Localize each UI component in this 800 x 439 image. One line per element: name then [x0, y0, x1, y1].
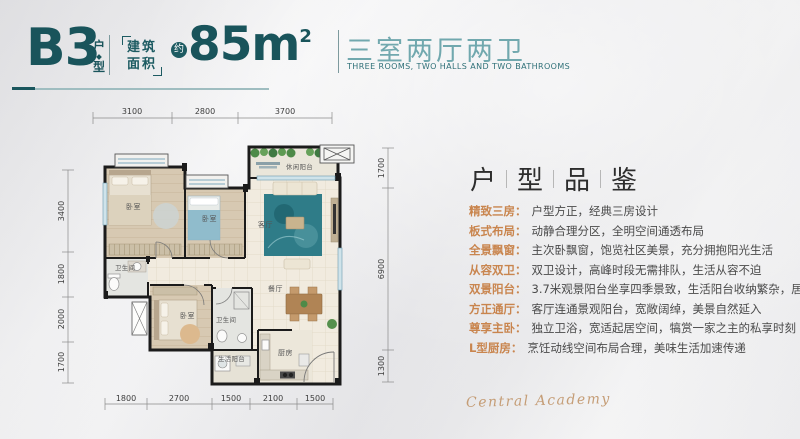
feature-desc: 动静合理分区，全明空间通透布局 [532, 222, 705, 242]
header-divider-1 [109, 35, 110, 75]
area-number: 85m [188, 17, 299, 72]
label-dining: 餐厅 [268, 284, 283, 293]
feature-desc: 主次卧飘窗，饱览社区美景，充分拥抱阳光生活 [532, 241, 774, 261]
feature-desc: 烹饪动线空间布局合理，美味生活加速传递 [527, 339, 746, 359]
feature-tag: 精致三房： [469, 202, 527, 222]
label-bath2: 卫生间 [216, 315, 236, 324]
feature-tag: 从容双卫： [469, 261, 527, 281]
feature-tag: 尊享主卧： [469, 319, 527, 339]
label-bath1: 卫生间 [115, 263, 135, 272]
dim-right-1: 1700 [377, 158, 386, 178]
heading-char-1: 户 [470, 160, 496, 197]
feature-row: 尊享主卧： 独立卫浴，宽适起居空间，犒赏一家之主的私享时刻 [469, 319, 800, 339]
label-leisure-balcony: 休闲阳台 [286, 162, 313, 171]
feature-row: 板式布局： 动静合理分区，全明空间通透布局 [469, 222, 800, 242]
area-superscript: 2 [299, 26, 312, 47]
feature-row: 从容双卫： 双卫设计，高峰时段无需排队，生活从容不迫 [469, 261, 800, 281]
dim-left-3: 2000 [57, 309, 66, 329]
dim-left-1: 3400 [57, 201, 66, 221]
diamond-icon [96, 54, 102, 60]
dim-right-3: 1300 [377, 356, 386, 376]
feature-tag: 板式布局： [469, 222, 527, 242]
approx-badge: 约 [171, 42, 187, 58]
feature-tag: L型厨房： [469, 339, 522, 359]
unit-type-char-top: 户 [93, 39, 105, 53]
poster-canvas: { "header": { "unit_code": "B3", "unit_l… [0, 0, 800, 439]
area-label-line2: 面积 [127, 56, 157, 73]
panel-heading: 户 型 品 鉴 [470, 160, 637, 197]
label-bedroom1: 卧室 [126, 202, 141, 211]
heading-separator [600, 170, 601, 188]
header-rule-dark [12, 87, 35, 90]
dim-bottom-4: 2100 [263, 394, 283, 403]
dim-bottom-1: 1800 [116, 394, 136, 403]
feature-desc: 独立卫浴，宽适起居空间，犒赏一家之主的私享时刻 [532, 319, 797, 339]
dim-top-1: 3100 [122, 107, 142, 116]
area-label-line1: 建筑 [127, 39, 157, 56]
feature-desc: 户型方正，经典三房设计 [532, 202, 659, 222]
feature-row: 精致三房： 户型方正，经典三房设计 [469, 202, 800, 222]
dim-bottom-2: 2700 [169, 394, 189, 403]
heading-char-3: 品 [564, 160, 590, 197]
feature-row: 全景飘窗： 主次卧飘窗，饱览社区美景，充分拥抱阳光生活 [469, 241, 800, 261]
dim-left-4: 1700 [57, 352, 66, 372]
unit-type-char-bottom: 型 [93, 60, 105, 74]
feature-row: L型厨房： 烹饪动线空间布局合理，美味生活加速传递 [469, 339, 800, 359]
heading-char-2: 型 [517, 160, 543, 197]
unit-type-vertical: 户 型 [92, 40, 106, 74]
dim-top-3: 3700 [275, 107, 295, 116]
header-rule-light [35, 88, 269, 90]
label-living: 客厅 [258, 220, 273, 229]
floorplan: 卧室 卧室 休闲阳台 客厅 餐厅 卫生间 卧室 卫生间 生活阳台 厨房 3100… [52, 98, 402, 438]
dim-top-2: 2800 [195, 107, 215, 116]
feature-row: 方正通厅： 客厅连通景观阳台，宽敞阔绰，美景自然延入 [469, 300, 800, 320]
dim-bottom-3: 1500 [221, 394, 241, 403]
area-value: 85m2 [188, 21, 312, 68]
area-label: 建筑 面积 [122, 36, 162, 76]
page-subtitle: THREE ROOMS, TWO HALLS AND TWO BATHROOMS [347, 62, 570, 71]
heading-separator [553, 170, 554, 188]
dim-left-2: 1800 [57, 264, 66, 284]
feature-desc: 3.7米观景阳台坐享四季景致，生活阳台收纳繁杂，居家更品质 [532, 280, 800, 300]
feature-tag: 方正通厅： [469, 300, 527, 320]
heading-separator [506, 170, 507, 188]
heading-char-4: 鉴 [611, 160, 637, 197]
label-life-balcony: 生活阳台 [218, 354, 245, 363]
brand-signature: Central Academy [466, 391, 611, 411]
header-divider-2 [338, 30, 339, 73]
dim-bottom-5: 1500 [305, 394, 325, 403]
feature-desc: 双卫设计，高峰时段无需排队，生活从容不迫 [532, 261, 762, 281]
label-kitchen: 厨房 [278, 348, 293, 357]
feature-tag: 双景阳台： [469, 280, 527, 300]
feature-tag: 全景飘窗： [469, 241, 527, 261]
label-bedroom3: 卧室 [180, 311, 195, 320]
feature-list: 精致三房： 户型方正，经典三房设计 板式布局： 动静合理分区，全明空间通透布局 … [469, 202, 800, 358]
dim-right-2: 6900 [377, 259, 386, 279]
label-bedroom2: 卧室 [202, 214, 217, 223]
feature-row: 双景阳台： 3.7米观景阳台坐享四季景致，生活阳台收纳繁杂，居家更品质 [469, 280, 800, 300]
unit-code: B3 [26, 22, 100, 74]
feature-desc: 客厅连通景观阳台，宽敞阔绰，美景自然延入 [532, 300, 762, 320]
